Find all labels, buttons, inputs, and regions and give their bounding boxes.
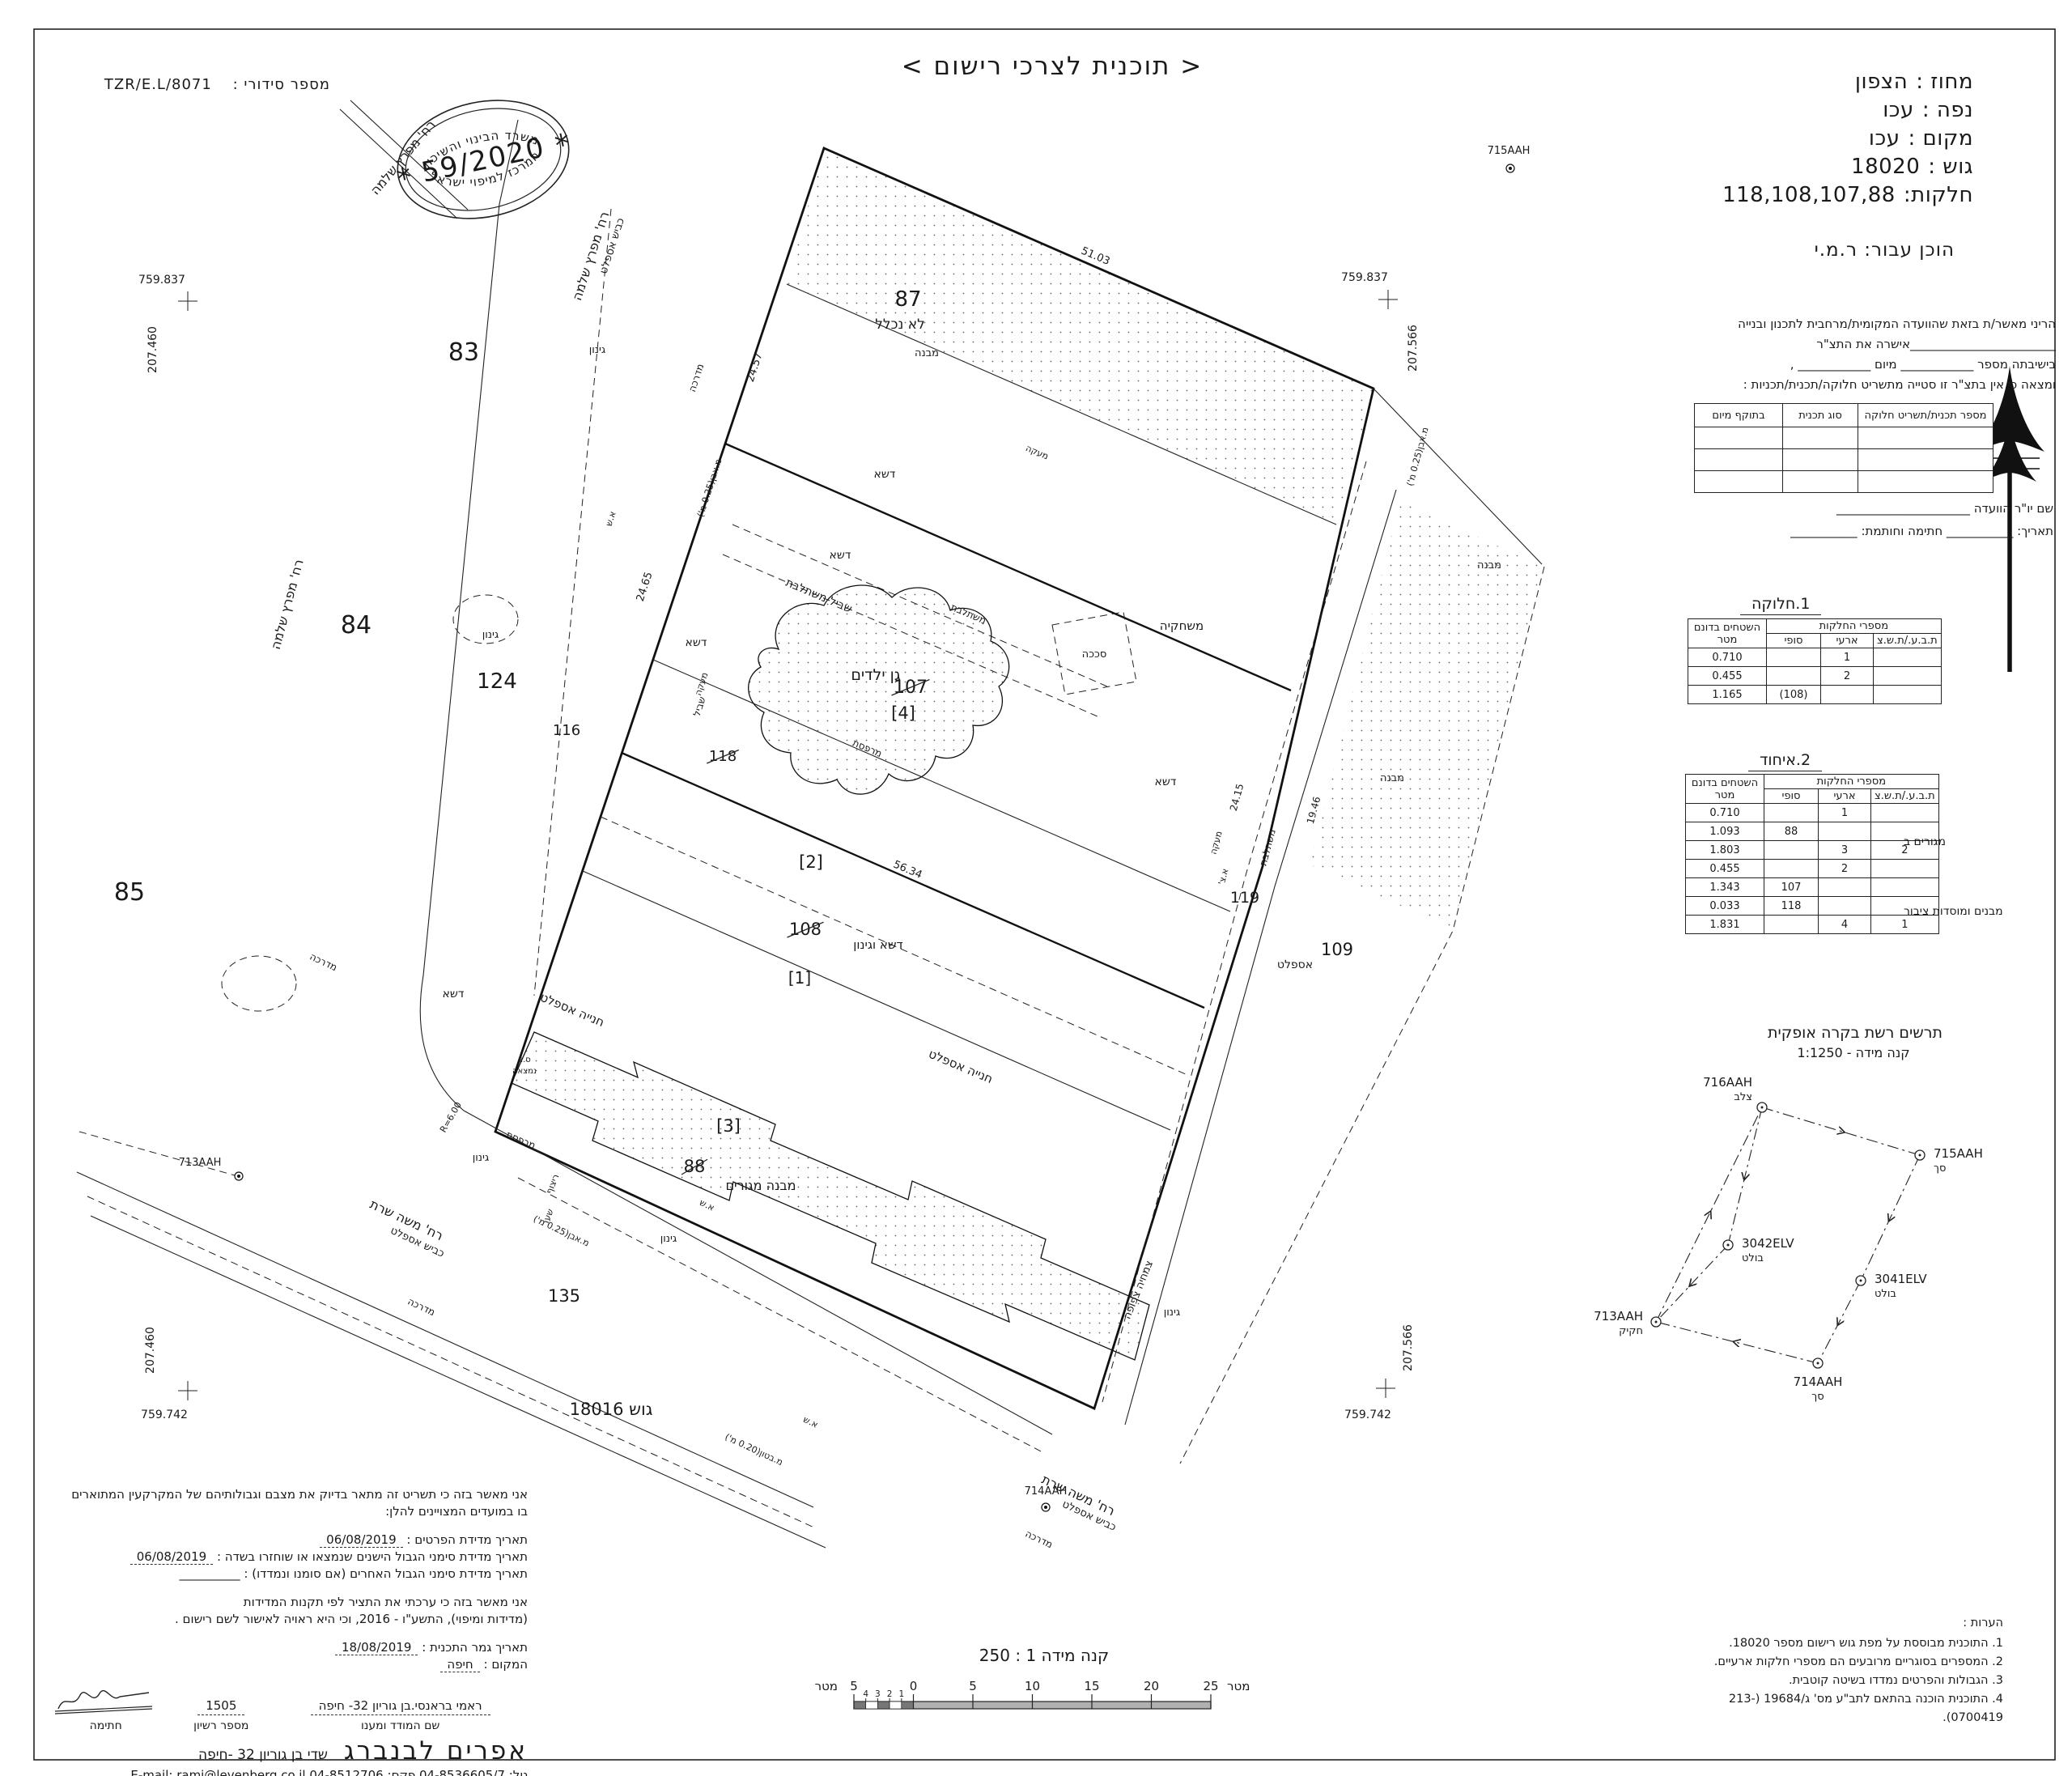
map-label: 24.65 <box>635 571 656 603</box>
map-label: מדרכה <box>1024 1527 1055 1550</box>
surveyor-name: ראמי בראנסי.בן גוריון 32- חיפה <box>311 1697 490 1715</box>
table-cell: 1.165 <box>1688 686 1767 704</box>
table-row: 10.710 <box>1688 648 1942 667</box>
map-label: 207.566 <box>1407 325 1420 372</box>
map-label: גינון <box>589 344 606 356</box>
area-header: השטחים בדונם מטר <box>1686 775 1764 804</box>
table-cell: 1 <box>1819 804 1871 822</box>
office-row: אפרים לבנברג שדי בן גוריון 32 -חיפה <box>42 1743 528 1764</box>
table-cell <box>1767 667 1821 686</box>
map-label: דשא וגינון <box>853 937 902 952</box>
control-point-type: חקיק <box>1619 1325 1643 1337</box>
cert-paragraph: בו במועדים המצויינים להלן: <box>42 1503 528 1520</box>
map-label: ריצוף <box>544 1173 562 1196</box>
scale-bar-minor-cell <box>890 1702 902 1709</box>
scale-tick-label: 5 <box>969 1679 977 1693</box>
table-row: 10.710 <box>1686 804 1939 822</box>
serial-value: TZR/E.L/8071 <box>104 76 212 93</box>
area-header: השטחים בדונם מטר <box>1688 619 1767 648</box>
map-label: מבנה <box>1380 772 1404 784</box>
cert-paragraph: (מדידות ומיפוי), התשע"ו - 2016, וכי היא … <box>42 1611 528 1628</box>
control-net-edge <box>1656 1107 1762 1322</box>
scale-bar: קנה מידה 1 : 250 505101520254321מטרמטר <box>815 1646 1250 1709</box>
date-value: 06/08/2019 <box>320 1532 402 1548</box>
cert-paragraph: אני מאשר בזה כי תשריט זה מתאר בדיוק את מ… <box>42 1486 528 1503</box>
stippled-areas <box>787 148 1542 929</box>
control-point-center <box>1817 1362 1819 1365</box>
scale-bar-minor-cell <box>854 1702 866 1709</box>
referenced-plans-table: מספר תכנית/תשריט חלוקה סוג תכנית בתוקף מ… <box>1694 403 1993 493</box>
table-cell: 2 <box>1821 667 1874 686</box>
map-label: 83 <box>448 338 479 367</box>
plans-col-number: מספר תכנית/תשריט חלוקה <box>1858 404 1993 427</box>
table-cell: 0.033 <box>1686 897 1764 916</box>
map-label: 119 <box>1230 889 1259 907</box>
table-cell <box>1819 897 1871 916</box>
map-label: [1] <box>788 968 811 988</box>
scale-tick-label: 25 <box>1203 1679 1218 1693</box>
license-label: מספר רשיון <box>193 1715 248 1735</box>
table-cell <box>1764 804 1819 822</box>
map-label: גינון <box>660 1233 677 1245</box>
scale-bar-minor-cell <box>877 1702 890 1709</box>
date-value: 18/08/2019 <box>335 1640 418 1655</box>
control-point-center <box>1727 1244 1730 1247</box>
map-label: אספלט <box>1277 958 1313 971</box>
table-cell <box>1819 878 1871 897</box>
map-label: דשא <box>1155 775 1177 788</box>
control-point-type: סך <box>1811 1391 1824 1403</box>
table-cell: 1.343 <box>1686 878 1764 897</box>
section2-title: 2.איחוד <box>1748 751 1822 771</box>
map-label: [3] <box>716 1116 741 1136</box>
office-address: שדי בן גוריון 32 -חיפה <box>198 1747 328 1764</box>
scale-unit-left: מטר <box>1227 1679 1250 1693</box>
header-row-district: מחוז :הצפון <box>1682 68 1973 96</box>
col-tbz: ת.ב.ע./ת.ש.צ <box>1874 634 1942 648</box>
annotation-public-buildings: מבנים ומוסדות ציבור <box>1904 905 2003 918</box>
scale-bar-minor-cell <box>902 1702 914 1709</box>
map-label: סככה <box>1082 648 1107 661</box>
table-row: 20.455 <box>1688 667 1942 686</box>
scale-tick-label: 15 <box>1084 1679 1099 1693</box>
map-label: דשא <box>830 549 851 562</box>
map-label: 759.837 <box>138 274 185 287</box>
plans-empty-row <box>1695 471 1993 493</box>
map-label: מדרכה <box>406 1295 437 1318</box>
scale-minor-label: 4 <box>863 1689 868 1699</box>
plans-col-type: סוג תכנית <box>1783 404 1858 427</box>
table-cell: 1.803 <box>1686 841 1764 860</box>
table-cell: 88 <box>1764 822 1819 841</box>
place-value: חיפה <box>440 1657 479 1672</box>
approval-line: ________________________אישרה את התצ"ר <box>1679 334 2056 355</box>
committee-signature-lines: שם יו"ר הוועדה ______________________ תא… <box>1679 497 2053 542</box>
col-final: סופי <box>1767 634 1821 648</box>
header-row-place: מקום :עכו <box>1682 125 1973 153</box>
map-label: חנייה אספלט <box>927 1047 996 1087</box>
license-number: 1505 <box>197 1697 244 1715</box>
surveyor-certification: אני מאשר בזה כי תשריט זה מתאר בדיוק את מ… <box>42 1486 528 1776</box>
map-label: גינון <box>473 1152 490 1164</box>
control-point-center <box>1860 1280 1862 1282</box>
table-row: 20.455 <box>1686 860 1939 878</box>
col-temp: ארעי <box>1819 789 1871 804</box>
scale-tick-label: 0 <box>910 1679 918 1693</box>
map-label: מ.אבן(0.25 מ') <box>532 1213 591 1248</box>
plan-header-block: מחוז :הצפון נפה :עכו מקום :עכו גוש :1802… <box>1682 68 1973 210</box>
control-net-edge <box>1762 1107 1920 1155</box>
map-label: 109 <box>1321 940 1353 959</box>
scale-minor-label: 3 <box>875 1689 881 1699</box>
date-stamp-line: תאריך: ___________ חתימה וחותמת: _______… <box>1679 520 2053 542</box>
table-cell <box>1767 648 1821 667</box>
signature-label: חתימה <box>90 1715 122 1735</box>
map-label: א.ש <box>698 1197 715 1213</box>
map-label: 87 <box>894 287 921 312</box>
header-row-parcels: חלקות:118,108,107,88 <box>1682 181 1973 210</box>
table-cell: 1 <box>1821 648 1874 667</box>
control-net-edge <box>1728 1107 1762 1245</box>
control-point-type: צלב <box>1734 1091 1752 1103</box>
table-cell <box>1871 804 1939 822</box>
control-net-edge <box>1656 1245 1728 1322</box>
section1-title: 1.חלוקה <box>1740 595 1821 615</box>
map-label: משחקיה <box>1160 618 1204 633</box>
surveyor-name-column: ראמי בראנסי.בן גוריון 32- חיפה שם המודד … <box>273 1697 528 1735</box>
table-row: 141.831 <box>1686 916 1939 934</box>
map-label: מבנה <box>915 347 939 359</box>
map-label: דשא <box>874 468 896 481</box>
map-label: רח' מפרץ שלמה <box>268 558 307 651</box>
map-label: לא נכלל <box>875 317 925 333</box>
map-label: 207.460 <box>144 1327 157 1374</box>
scale-unit-right: מטר <box>815 1679 838 1693</box>
control-point-type: בולט <box>1742 1252 1764 1264</box>
control-point-type: בולט <box>1875 1288 1896 1300</box>
control-point-center <box>1761 1107 1764 1109</box>
map-label: שביל <box>691 695 708 718</box>
map-label: R=6.00 <box>438 1100 464 1134</box>
map-label: נמצאה <box>512 1067 537 1076</box>
table-cell: (108) <box>1767 686 1821 704</box>
control-point-id: 3041ELV <box>1875 1272 1927 1286</box>
header-row-block: גוש :18020 <box>1682 153 1973 181</box>
page-title: < תוכנית לצרכי רישום > <box>842 52 1263 81</box>
cert-date-old-marks: תאריך מדידת סימני הגבול הישנים שנמצאו או… <box>42 1549 528 1566</box>
map-label: ס.צ <box>518 1056 531 1064</box>
map-label: מעקה <box>1208 830 1225 856</box>
notes-title: הערות : <box>1683 1614 2003 1633</box>
serial-label: מספר סידורי : <box>233 76 330 93</box>
cert-paragraph: אני מאשר בזה כי ערכתי את התציר לפי תקנות… <box>42 1594 528 1611</box>
map-label: מעקה <box>1024 443 1050 461</box>
map-label: 715AAH <box>1488 145 1531 157</box>
table-cell: 0.710 <box>1686 804 1764 822</box>
map-label: 124 <box>477 669 517 694</box>
scale-tick-label: 20 <box>1144 1679 1159 1693</box>
map-label: 759.742 <box>141 1408 188 1421</box>
header-row-subdistrict: נפה :עכו <box>1682 96 1973 125</box>
scale-minor-label: 2 <box>887 1689 893 1699</box>
col-temp: ארעי <box>1821 634 1874 648</box>
chairman-line: שם יו"ר הוועדה ______________________ <box>1679 497 2053 520</box>
note-item: 4. התוכנית הוכנה בהתאם לתב"ע מס' ג/19684… <box>1683 1690 2003 1727</box>
map-label: חנייה אספלט <box>538 990 607 1030</box>
control-point-id: 714AAH <box>1794 1374 1843 1389</box>
table-row: 231.803 <box>1686 841 1939 860</box>
table-cell: 118 <box>1764 897 1819 916</box>
table-cell: 0.710 <box>1688 648 1767 667</box>
map-label: א.ש <box>604 510 618 528</box>
signature-icon <box>53 1685 159 1715</box>
map-label: 85 <box>114 878 145 907</box>
map-label: 713AAH <box>179 1157 222 1169</box>
control-net-scale: קנה מידה - 1:1250 <box>1797 1045 1909 1060</box>
control-point-id: 713AAH <box>1594 1309 1643 1324</box>
table-cell: 107 <box>1764 878 1819 897</box>
table-row: 1180.033 <box>1686 897 1939 916</box>
cert-place: המקום : חיפה <box>42 1656 528 1673</box>
table-cell <box>1871 878 1939 897</box>
map-label: 24.57 <box>745 351 766 384</box>
map-label: [2] <box>799 852 823 872</box>
control-point-id: 715AAH <box>1934 1146 1983 1161</box>
map-label: גן ילדים <box>851 666 900 684</box>
map-label: 135 <box>548 1286 580 1306</box>
map-label: גינון <box>1164 1307 1181 1319</box>
control-network-diagram: תרשים רשת בקרה אופקית קנה מידה - 1:1250 … <box>1594 1024 1983 1403</box>
map-label: [4] <box>891 703 915 723</box>
table-cell <box>1874 667 1942 686</box>
map-label: גינון <box>482 629 499 641</box>
note-item: 2. המספרים בסוגריים מרובעים הם מספרי חלק… <box>1683 1653 2003 1672</box>
table-cell <box>1764 841 1819 860</box>
map-label: מבנה <box>1477 559 1501 571</box>
table-cell: 0.455 <box>1688 667 1767 686</box>
control-point-type: סך <box>1934 1162 1946 1175</box>
map-label: מדרכה <box>308 950 339 973</box>
table-cell <box>1764 916 1819 934</box>
approval-line: הריני מאשר/ת בזאת שהוועדה המקומית/מרחבית… <box>1679 314 2056 334</box>
union-table: מספרי החלקות השטחים בדונם מטר ת.ב.ע./ת.ש… <box>1685 774 1939 934</box>
division-table: מספרי החלקות השטחים בדונם מטר ת.ב.ע./ת.ש… <box>1688 618 1942 704</box>
office-name: אפרים לבנברג <box>344 1743 528 1760</box>
stamp-star-left: * <box>552 128 573 164</box>
control-point-center <box>1919 1154 1921 1157</box>
prepared-for: הוכן עבור: ר.מ.י <box>1815 240 1955 261</box>
map-label: 116 <box>553 722 580 739</box>
cert-completion-date: תאריך גמר התכנית : 18/08/2019 <box>42 1639 528 1656</box>
map-label: גוש 18016 <box>570 1400 653 1419</box>
residential-building <box>512 1032 1149 1360</box>
notes-block: הערות : 1. התוכנית מבוססת על מפת גוש ריש… <box>1683 1614 2003 1727</box>
date-value: 06/08/2019 <box>130 1549 213 1565</box>
control-net-edge <box>1861 1155 1920 1281</box>
cert-date-other-marks: תאריך מדידת סימני הגבול האחרים (אם סומנו… <box>42 1566 528 1583</box>
control-point-id: 716AAH <box>1703 1075 1752 1090</box>
map-label: מעקה <box>693 671 710 697</box>
map-label: 759.742 <box>1344 1408 1391 1421</box>
table-cell: 1.831 <box>1686 916 1764 934</box>
map-label: משתלבת <box>1257 828 1277 867</box>
map-label: מ.אבן(0.25 מ') <box>695 457 724 518</box>
table-cell <box>1874 648 1942 667</box>
map-label: א.צ' <box>1216 868 1231 886</box>
map-label: 207.566 <box>1402 1324 1415 1371</box>
map-label: 24.15 <box>1228 783 1246 813</box>
control-point-center <box>1655 1321 1658 1324</box>
table-cell: 3 <box>1819 841 1871 860</box>
map-label: דשא <box>443 988 465 1001</box>
table-cell: 0.455 <box>1686 860 1764 878</box>
note-item: 3. הגבולות והפרטים נמדדו בשיטה קוטבית. <box>1683 1672 2003 1690</box>
table-cell <box>1874 686 1942 704</box>
scale-tick-label: 10 <box>1025 1679 1040 1693</box>
scale-bar-title: קנה מידה 1 : 250 <box>979 1646 1109 1665</box>
map-label: מ.אבן(0.25 מ') <box>1405 426 1431 487</box>
control-net-edge <box>1656 1322 1818 1363</box>
license-column: 1505 מספר רשיון <box>169 1697 273 1735</box>
table-cell: 1.093 <box>1686 822 1764 841</box>
table-cell: 4 <box>1819 916 1871 934</box>
cert-date-details: תאריך מדידת הפרטים : 06/08/2019 <box>42 1532 528 1549</box>
plots-header: מספרי החלקות <box>1767 619 1942 634</box>
table-row: 881.093 <box>1686 822 1939 841</box>
plans-empty-row <box>1695 449 1993 471</box>
signature-column: חתימה <box>42 1685 169 1735</box>
map-label: דשא <box>686 636 707 649</box>
approval-line: ומצאה כי אין בתצ"ר זו סטייה מתשריט חלוקה… <box>1679 375 2056 395</box>
approval-line: בישיבתה מספר ____________ מיום _________… <box>1679 355 2056 375</box>
map-label: מבנה מגורים <box>725 1178 796 1193</box>
col-final: סופי <box>1764 789 1819 804</box>
table-cell: 2 <box>1819 860 1871 878</box>
survey-plan-sheet: 83848512487לא נכלל107[4]גן ילדיםמשחקיה[2… <box>0 0 2072 1776</box>
control-point-id: 3042ELV <box>1742 1236 1794 1251</box>
plans-empty-row <box>1695 427 1993 449</box>
scale-minor-label: 1 <box>898 1689 904 1699</box>
map-label: מדרכה <box>686 363 706 393</box>
map-label: מ.בטון(0.20 מ') <box>724 1432 785 1468</box>
note-item: 1. התוכנית מבוססת על מפת גוש רישום מספר … <box>1683 1634 2003 1653</box>
table-cell <box>1819 822 1871 841</box>
office-contact: טל: 04-8536605/7 פקס: 04-8512706 E-mail:… <box>42 1767 528 1776</box>
map-label: 207.460 <box>146 326 159 373</box>
map-label: א.ש <box>801 1414 819 1430</box>
map-label: מרפסת <box>504 1128 537 1151</box>
scale-tick-label: 5 <box>850 1679 858 1693</box>
table-cell <box>1871 860 1939 878</box>
scale-bar-minor-cell <box>866 1702 878 1709</box>
map-label: 19.46 <box>1305 796 1323 826</box>
control-net-title: תרשים רשת בקרה אופקית <box>1768 1024 1942 1042</box>
stamp-star-right: * <box>394 161 415 197</box>
annotation-residential: מגורים ב <box>1904 835 1946 848</box>
map-label: 714AAH <box>1025 1485 1068 1498</box>
surveyor-name-label: שם המודד ומענו <box>361 1715 439 1735</box>
table-cell <box>1764 860 1819 878</box>
control-net-edge <box>1818 1281 1861 1363</box>
table-cell <box>1821 686 1874 704</box>
table-row: (108)1.165 <box>1688 686 1942 704</box>
plots-header: מספרי החלקות <box>1764 775 1939 789</box>
map-label: 759.837 <box>1341 271 1388 284</box>
signature-row: ראמי בראנסי.בן גוריון 32- חיפה שם המודד … <box>42 1685 528 1735</box>
map-label: 84 <box>341 611 372 639</box>
plans-col-valid: בתוקף מיום <box>1695 404 1783 427</box>
table-row: 1071.343 <box>1686 878 1939 897</box>
col-tbz: ת.ב.ע./ת.ש.צ <box>1871 789 1939 804</box>
committee-approval-text: הריני מאשר/ת בזאת שהוועדה המקומית/מרחבית… <box>1679 314 2056 395</box>
serial-number: מספר סידורי : TZR/E.L/8071 <box>55 76 330 93</box>
